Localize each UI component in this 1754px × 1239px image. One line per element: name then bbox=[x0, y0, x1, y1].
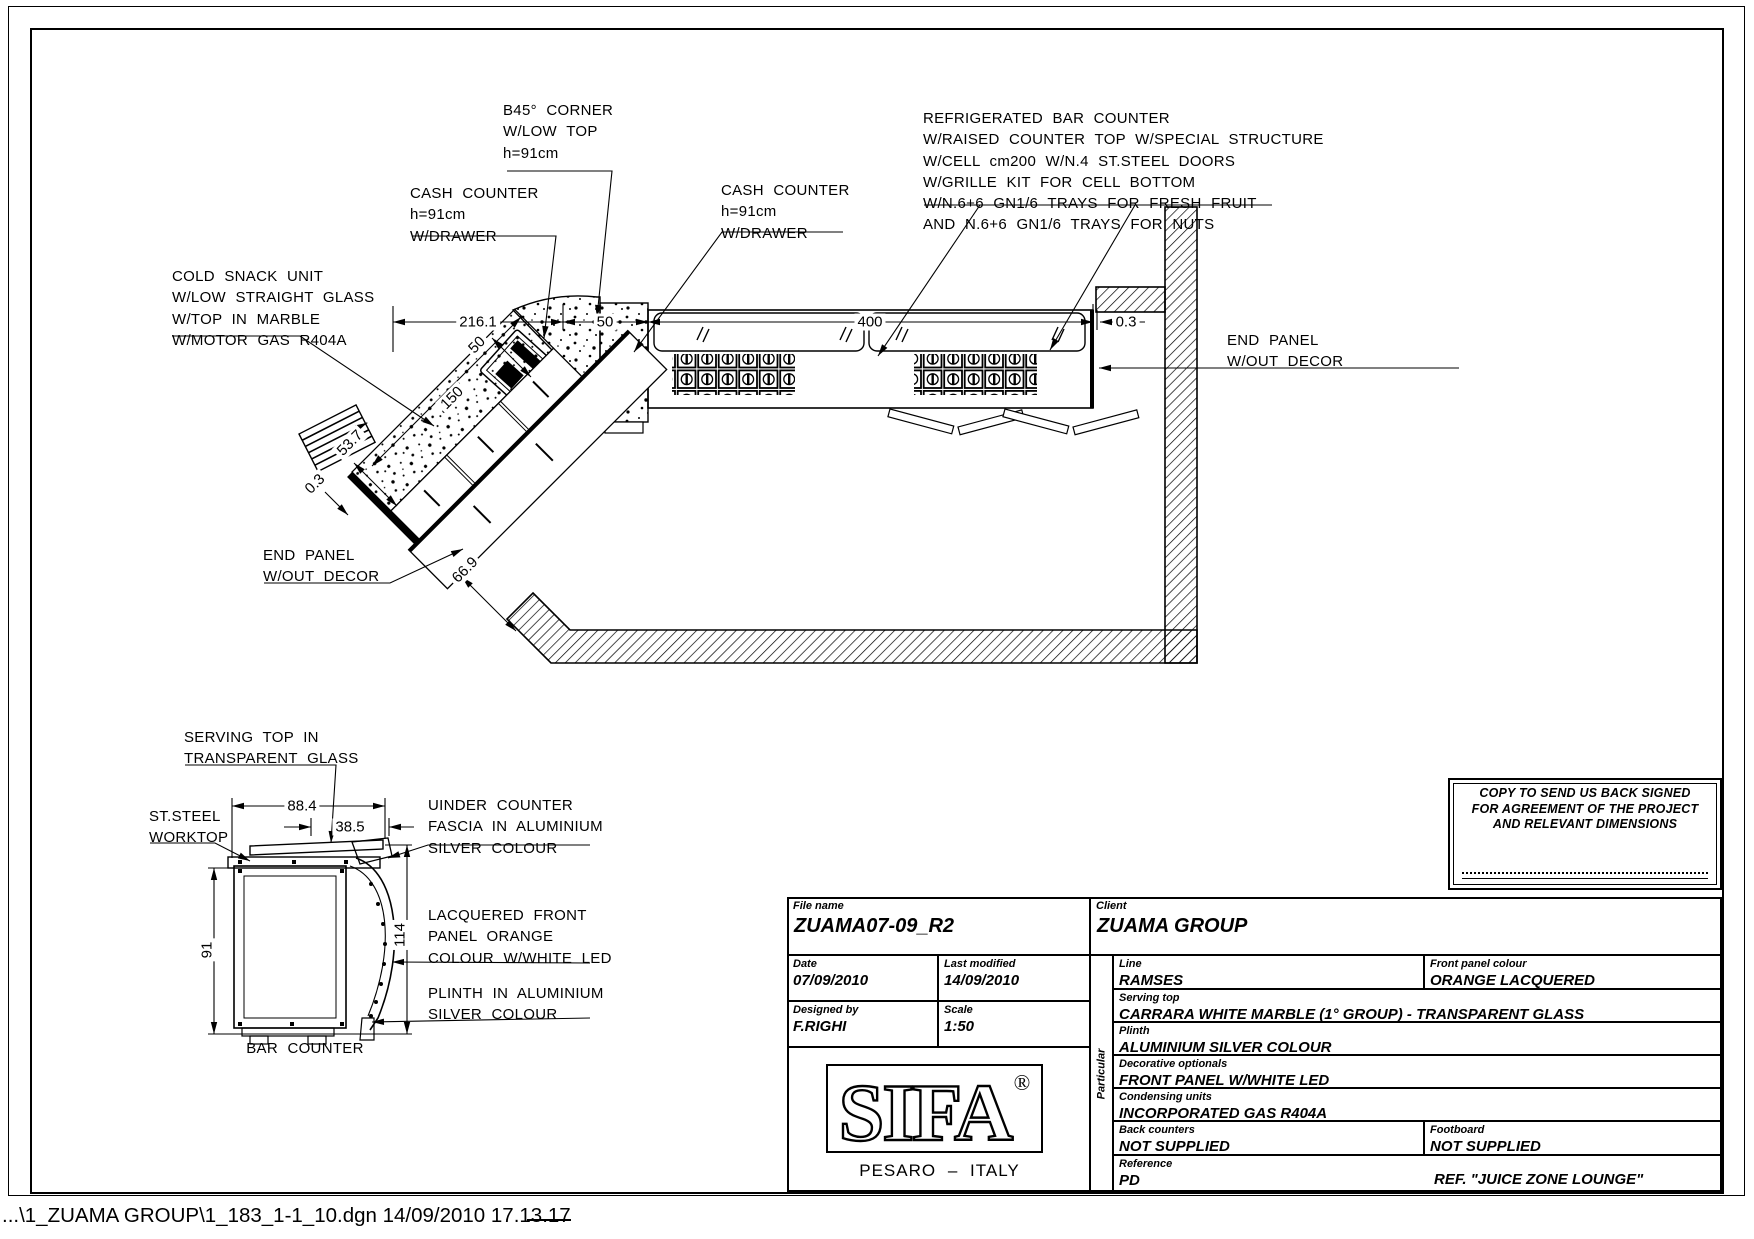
date-value: 07/09/2010 bbox=[793, 972, 937, 989]
client-value: ZUAMA GROUP bbox=[1097, 915, 1721, 938]
dim-50-top: 50 bbox=[594, 314, 617, 331]
refrigerated-counter bbox=[648, 310, 1139, 435]
back-counters-label: Back counters bbox=[1119, 1124, 1423, 1136]
scale-label: Scale bbox=[944, 1004, 1089, 1016]
dim-91: 91 bbox=[199, 939, 216, 962]
dim-216-1: 216.1 bbox=[456, 314, 500, 331]
condensing-units-label: Condensing units bbox=[1119, 1091, 1721, 1103]
decorative-optionals-label: Decorative optionals bbox=[1119, 1058, 1721, 1070]
copy-note-box: COPY TO SEND US BACK SIGNED FOR AGREEMEN… bbox=[1448, 778, 1722, 890]
cell-last-modified: Last modified 14/09/2010 bbox=[938, 955, 1090, 1001]
dim-114: 114 bbox=[392, 920, 409, 950]
pesaro-italy-text: PESARO – ITALY bbox=[832, 1161, 1047, 1181]
file-name-label: File name bbox=[793, 900, 1089, 912]
annotation-end-panel-right: END PANEL W/OUT DECOR bbox=[1227, 330, 1343, 373]
cell-serving-top: Serving top CARRARA WHITE MARBLE (1° GRO… bbox=[1113, 989, 1722, 1022]
particular-label: Particular bbox=[1096, 1048, 1108, 1099]
gn-tray-grid-right bbox=[914, 354, 1037, 395]
plinth-value: ALUMINIUM SILVER COLOUR bbox=[1119, 1039, 1721, 1055]
cad-drawing-page: SIFA ® B45° CORNER W/LOW TOP h=91cm CASH… bbox=[0, 0, 1754, 1239]
file-name-value: ZUAMA07-09_R2 bbox=[794, 915, 1089, 938]
reference-label: Reference bbox=[1119, 1158, 1721, 1170]
scale-value: 1:50 bbox=[944, 1018, 1089, 1035]
cell-file-name: File name ZUAMA07-09_R2 bbox=[787, 897, 1090, 955]
footboard-label: Footboard bbox=[1430, 1124, 1721, 1136]
decorative-optionals-value: FRONT PANEL W/WHITE LED bbox=[1119, 1072, 1721, 1088]
cell-decorative-optionals: Decorative optionals FRONT PANEL W/WHITE… bbox=[1113, 1055, 1722, 1088]
annotation-under-counter-fascia: UINDER COUNTER FASCIA IN ALUMINIUM SILVE… bbox=[428, 795, 603, 859]
condensing-units-value: INCORPORATED GAS R404A bbox=[1119, 1105, 1721, 1121]
annotation-plinth: PLINTH IN ALUMINIUM SILVER COLOUR bbox=[428, 983, 604, 1026]
cell-reference: Reference PD REF. "JUICE ZONE LOUNGE" bbox=[1113, 1155, 1722, 1192]
footboard-value: NOT SUPPLIED bbox=[1430, 1138, 1721, 1155]
designed-by-label: Designed by bbox=[793, 1004, 937, 1016]
cell-footboard: Footboard NOT SUPPLIED bbox=[1424, 1121, 1722, 1155]
line-value: RAMSES bbox=[1119, 972, 1423, 989]
cell-date: Date 07/09/2010 bbox=[787, 955, 938, 1001]
signature-line-solid bbox=[1462, 878, 1708, 879]
plinth-label: Plinth bbox=[1119, 1025, 1721, 1037]
cell-front-panel-colour: Front panel colour ORANGE LACQUERED bbox=[1424, 955, 1722, 989]
annotation-serving-top: SERVING TOP IN TRANSPARENT GLASS bbox=[184, 727, 359, 770]
cell-scale: Scale 1:50 bbox=[938, 1001, 1090, 1047]
annotation-cash-counter-1: CASH COUNTER h=91cm W/DRAWER bbox=[410, 183, 539, 247]
cell-line: Line RAMSES bbox=[1113, 955, 1424, 989]
dim-400: 400 bbox=[854, 314, 885, 331]
dim-88-4: 88.4 bbox=[284, 798, 319, 815]
cell-client: Client ZUAMA GROUP bbox=[1090, 897, 1722, 955]
led-dots bbox=[369, 882, 387, 1018]
right-wall bbox=[1096, 207, 1197, 663]
annotation-bar-counter: BAR COUNTER bbox=[240, 1038, 370, 1059]
client-label: Client bbox=[1096, 900, 1721, 912]
cell-back-counters: Back counters NOT SUPPLIED bbox=[1113, 1121, 1424, 1155]
screw-dots bbox=[238, 860, 348, 1026]
gn-tray-grid-left bbox=[672, 354, 795, 395]
cell-designed-by: Designed by F.RIGHI bbox=[787, 1001, 938, 1047]
section-dimensions bbox=[208, 798, 414, 1034]
reference-note: REF. "JUICE ZONE LOUNGE" bbox=[1434, 1171, 1643, 1188]
cell-condensing-units: Condensing units INCORPORATED GAS R404A bbox=[1113, 1088, 1722, 1121]
serving-top-label: Serving top bbox=[1119, 992, 1721, 1004]
serving-top-value: CARRARA WHITE MARBLE (1° GROUP) - TRANSP… bbox=[1119, 1006, 1721, 1022]
last-modified-value: 14/09/2010 bbox=[944, 972, 1089, 989]
designed-by-value: F.RIGHI bbox=[793, 1018, 937, 1035]
front-panel-colour-value: ORANGE LACQUERED bbox=[1430, 972, 1721, 989]
annotation-refrigerated-counter: REFRIGERATED BAR COUNTER W/RAISED COUNTE… bbox=[923, 108, 1324, 236]
annotation-cold-snack-unit: COLD SNACK UNIT W/LOW STRAIGHT GLASS W/T… bbox=[172, 266, 374, 351]
dim-38-5: 38.5 bbox=[332, 819, 367, 836]
file-path-status: ...\1_ZUAMA GROUP\1_183_1-1_10.dgn 14/09… bbox=[2, 1204, 571, 1228]
signature-line-dotted bbox=[1462, 872, 1708, 874]
back-counters-value: NOT SUPPLIED bbox=[1119, 1138, 1423, 1155]
section-view bbox=[228, 838, 412, 1044]
door-swing-slats bbox=[888, 409, 1139, 435]
front-panel-colour-label: Front panel colour bbox=[1430, 958, 1721, 970]
copy-note-text: COPY TO SEND US BACK SIGNED FOR AGREEMEN… bbox=[1458, 786, 1712, 833]
annotation-lacquered-front: LACQUERED FRONT PANEL ORANGE COLOUR W/WH… bbox=[428, 905, 612, 969]
annotation-end-panel-left: END PANEL W/OUT DECOR bbox=[263, 545, 379, 588]
line-label: Line bbox=[1119, 958, 1423, 970]
cell-particular: Particular bbox=[1090, 955, 1113, 1192]
bottom-wall bbox=[507, 593, 1197, 663]
annotation-st-steel-worktop: ST.STEEL WORKTOP bbox=[149, 806, 228, 849]
date-label: Date bbox=[793, 958, 937, 970]
cell-plinth: Plinth ALUMINIUM SILVER COLOUR bbox=[1113, 1022, 1722, 1055]
cell-logo: PESARO – ITALY bbox=[787, 1047, 1090, 1192]
annotation-cash-counter-2: CASH COUNTER h=91cm W/DRAWER bbox=[721, 180, 850, 244]
annotation-b45-corner: B45° CORNER W/LOW TOP h=91cm bbox=[503, 100, 613, 164]
status-trailing-line bbox=[527, 1219, 571, 1221]
dim-0-3-top: 0.3 bbox=[1113, 314, 1140, 331]
last-modified-label: Last modified bbox=[944, 958, 1089, 970]
